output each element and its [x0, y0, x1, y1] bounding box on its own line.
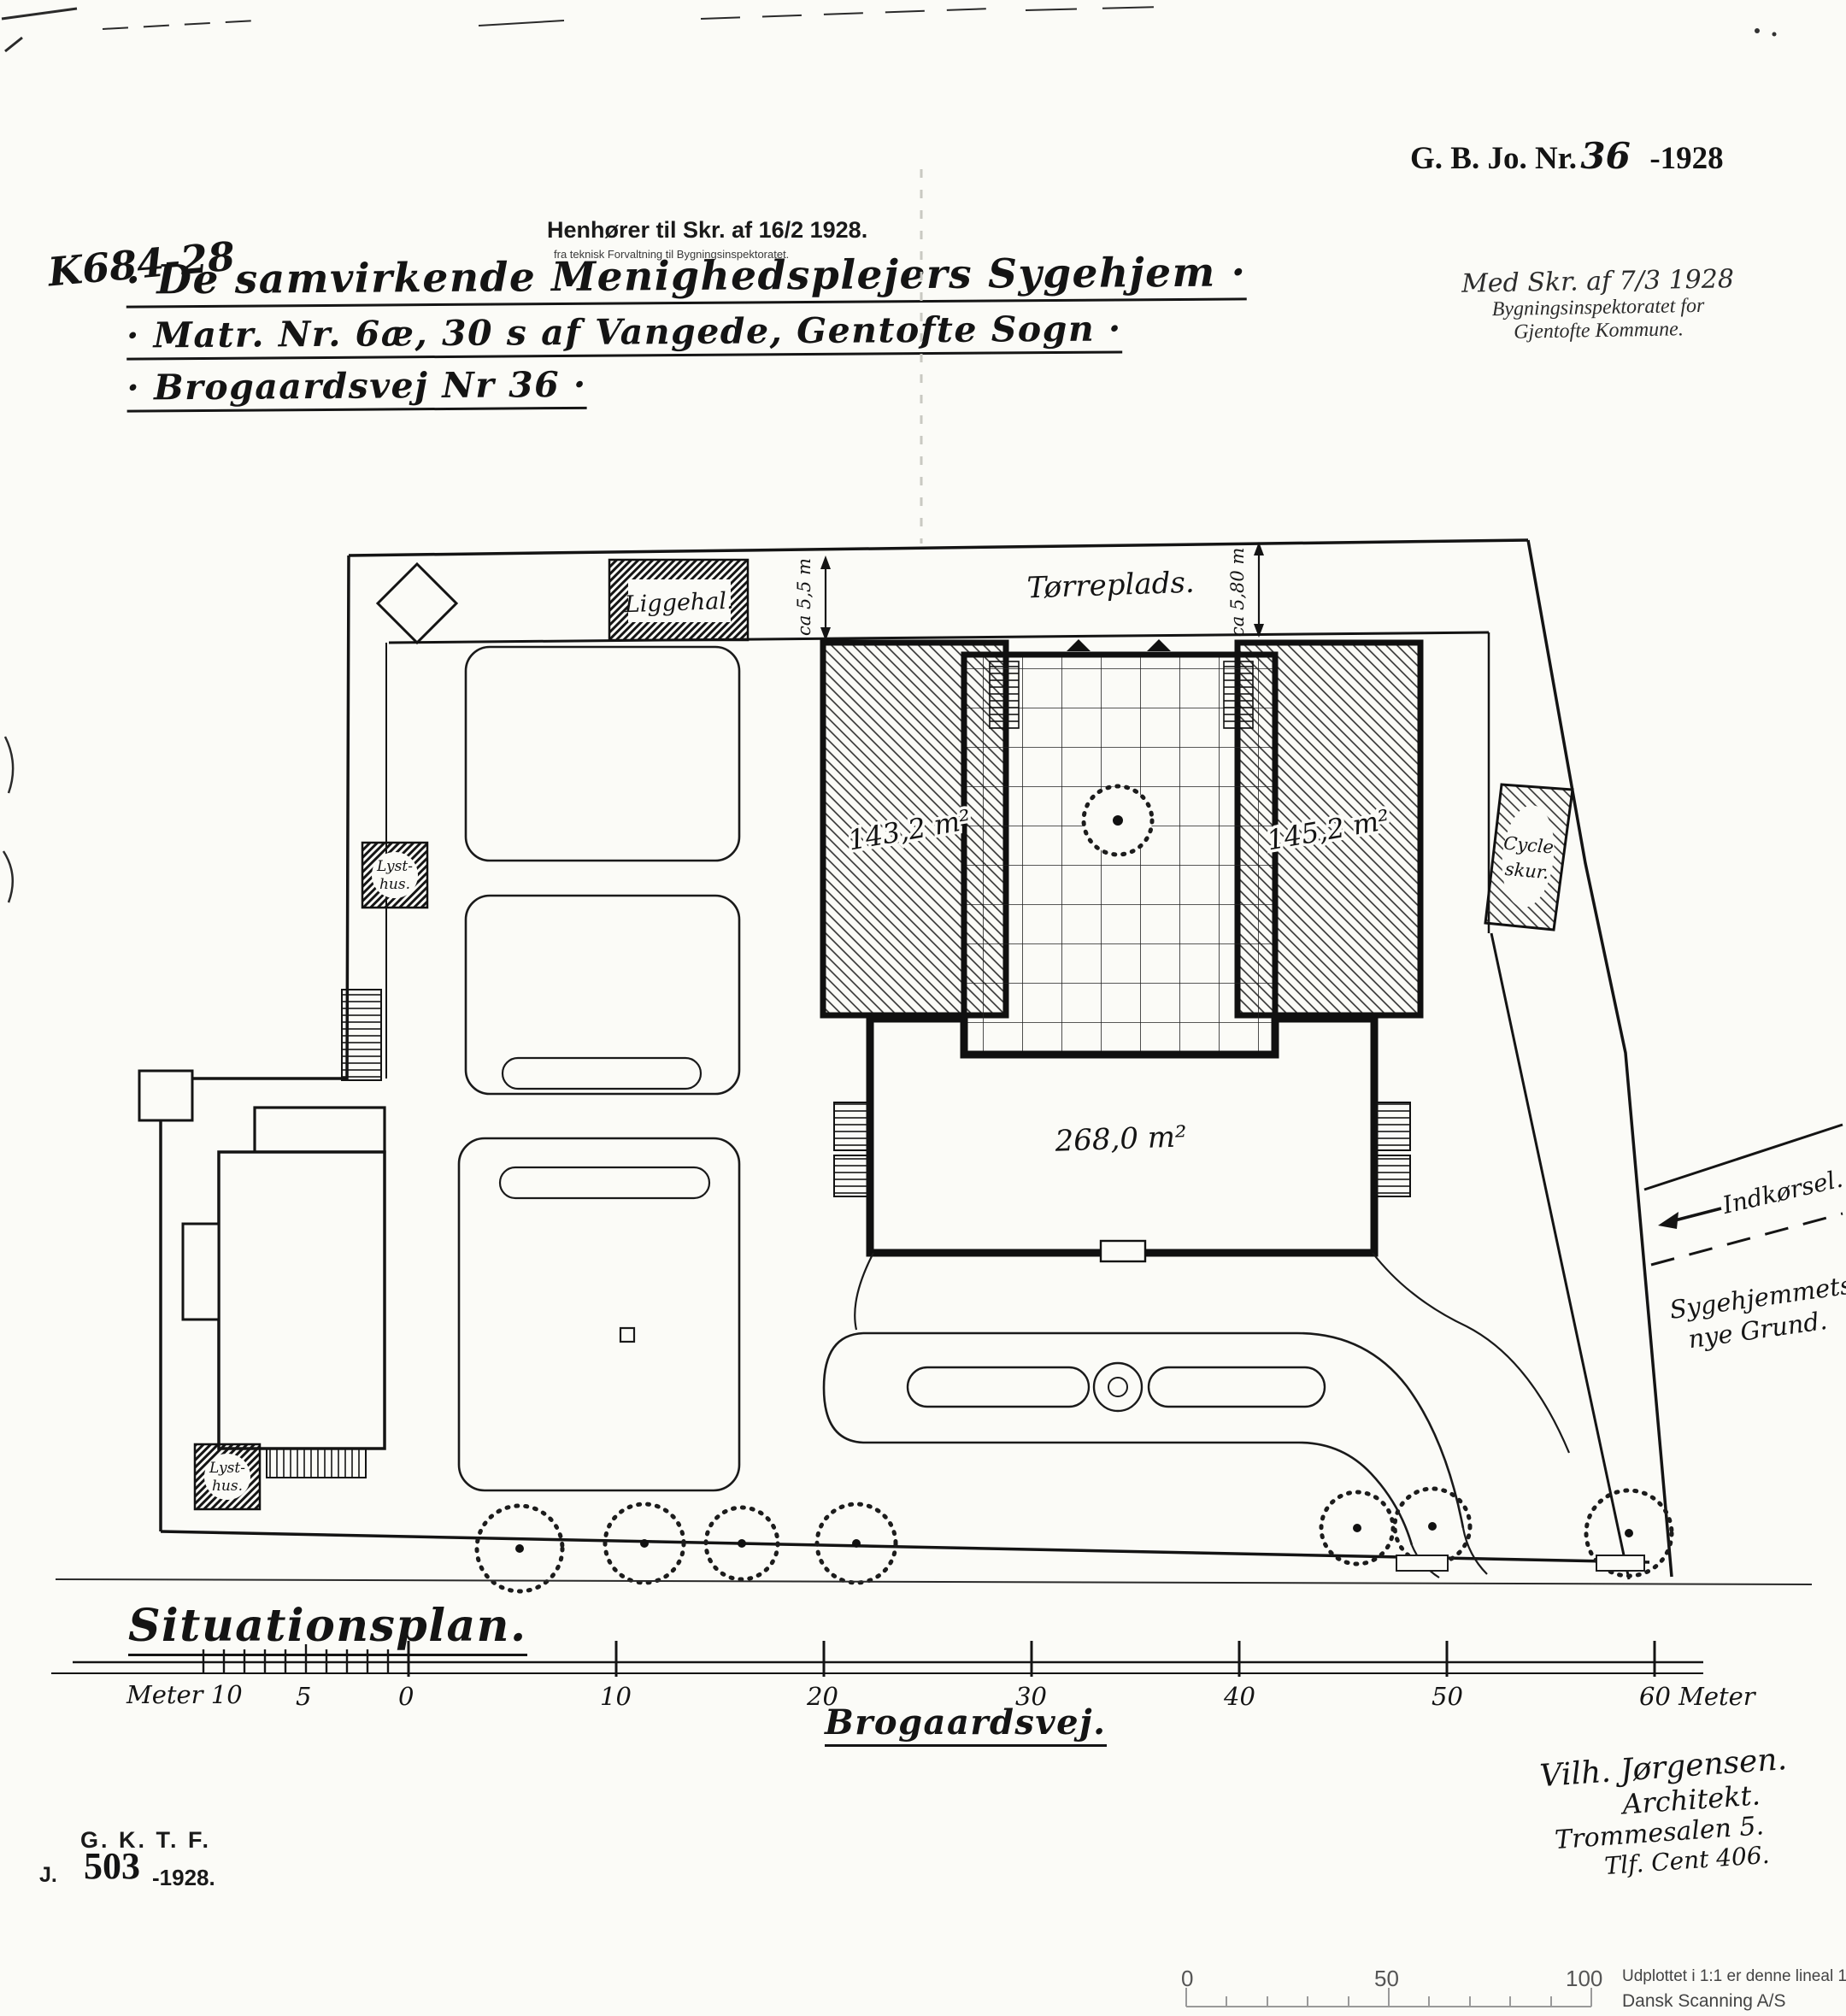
- scanner-credit: Dansk Scanning A/S: [1622, 1991, 1785, 2012]
- lysthus-bottom-label-1: Lyst-: [209, 1460, 245, 1477]
- dimension-arrow-left: ca 5,5 m: [794, 555, 831, 641]
- ruler-tick-100: 100: [1566, 1966, 1602, 1992]
- cycle-shed-label-2: skur.: [1504, 859, 1549, 883]
- ruler-note: Udplottet i 1:1 er denne lineal 100 mm.: [1622, 1967, 1846, 1986]
- liggehal-shed: Liggehal.: [609, 560, 748, 640]
- area-label-main-block: 268,0 m²: [1054, 1120, 1187, 1158]
- scanned-site-plan-sheet: K684-28 Henhører til Skr. af 16/2 1928. …: [0, 0, 1846, 2016]
- main-building: 143,2 m² 145,2 m² 268,0 m²: [823, 639, 1420, 1261]
- toerreplads-label: Tørreplads.: [1026, 566, 1195, 606]
- scale-label-meter10: Meter 10: [126, 1680, 243, 1709]
- lysthus-top-label-1: Lyst-: [376, 858, 413, 875]
- courtyard-tree: [1084, 786, 1152, 855]
- lysthus-bottom-label-2: hus.: [212, 1478, 243, 1495]
- dimension-right-label: ca 5,80 m: [1227, 548, 1248, 637]
- lysthus-top-label-2: hus.: [379, 876, 410, 893]
- ruler-tick-50: 50: [1374, 1966, 1399, 1992]
- lysthus-top: Lyst- hus.: [362, 843, 427, 908]
- left-building: [183, 990, 385, 1478]
- plan-type-title: Situationsplan.: [128, 1600, 527, 1656]
- archive-year: -1928.: [152, 1865, 215, 1891]
- archive-j: J.: [39, 1863, 57, 1888]
- ruler-tick-0: 0: [1181, 1966, 1193, 1992]
- scale-label-40: 40: [1224, 1682, 1255, 1711]
- liggehal-label: Liggehal.: [623, 588, 734, 618]
- archive-number: 503: [84, 1844, 140, 1888]
- lysthus-bottom: Lyst- hus.: [195, 1444, 260, 1509]
- street-name-label: Brogaardsvej.: [825, 1702, 1107, 1747]
- dimension-arrow-right: ca 5,80 m: [1227, 542, 1264, 638]
- scale-label-10: 10: [600, 1682, 632, 1711]
- street-trees: [477, 1489, 1672, 1591]
- drive-and-yard: [824, 1253, 1569, 1578]
- dimension-left-label: ca 5,5 m: [794, 558, 814, 636]
- indkoersel-label: Indkørsel.: [1719, 1165, 1845, 1220]
- architect-signature-block: Vilh. Jørgensen. Architekt. Trommesalen …: [1508, 1740, 1824, 1887]
- scale-label-5: 5: [296, 1682, 311, 1711]
- garden-plots: [459, 647, 739, 1490]
- street-line: [56, 1579, 1812, 1584]
- entrance-annotation: Indkørsel. Sygehjemmets nye Grund.: [1644, 1125, 1846, 1354]
- cycle-shed: Cycle skur.: [1485, 785, 1573, 930]
- scale-label-50: 50: [1432, 1682, 1463, 1711]
- cycle-shed-label-1: Cycle: [1502, 833, 1555, 858]
- scale-label-60: 60 Meter: [1639, 1682, 1755, 1711]
- scale-label-0: 0: [398, 1682, 414, 1711]
